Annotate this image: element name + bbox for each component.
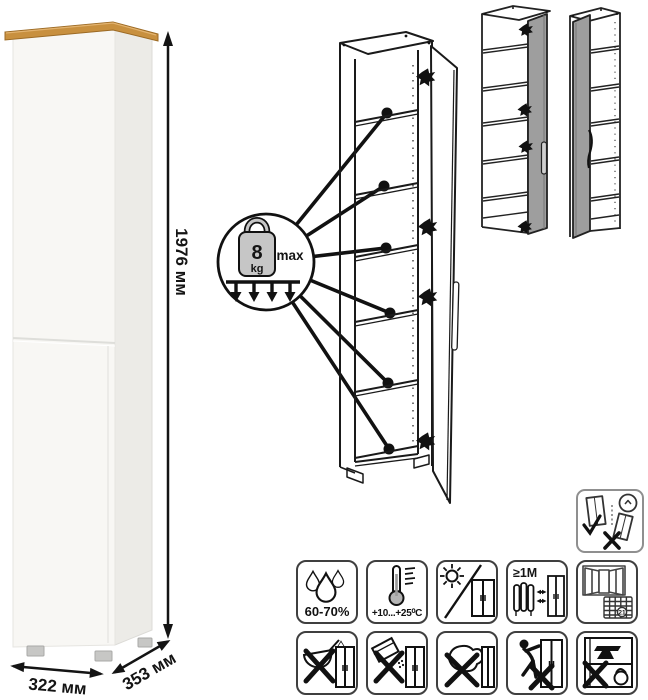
icon-no-overloading — [576, 631, 638, 695]
door-handle — [452, 282, 459, 350]
window-calendar-icon: 21 — [578, 562, 635, 621]
depth-dimension-label: 353 мм — [119, 648, 179, 694]
icon-no-wet-cloth — [436, 631, 498, 695]
x-mark — [605, 533, 619, 548]
min-distance-label: ≥1М — [513, 566, 537, 580]
distance-arrows — [537, 590, 547, 603]
icon-no-direct-sunlight — [436, 560, 498, 624]
icon-humidity-range: 60-70% — [296, 560, 358, 624]
width-dimension-label: 322 мм — [28, 675, 88, 699]
icon-no-dragging — [506, 631, 568, 695]
variant-door-left — [570, 8, 620, 238]
ladle-drop-x-icon — [298, 633, 355, 692]
anchor-to-wall-icon — [576, 489, 644, 553]
wet-sponge-x-icon — [438, 633, 495, 692]
load-max-label: max — [276, 248, 304, 263]
water-drops-icon — [298, 562, 355, 606]
shelf-pointer-dots — [379, 108, 396, 455]
sun-slash-cabinet-icon — [438, 562, 495, 621]
open-cabinet-load-diagram: 8 kg max — [210, 10, 500, 520]
thermometer-icon — [368, 562, 425, 606]
cabinet-carcass-outline — [340, 32, 433, 483]
powder-bag-x-icon — [368, 633, 425, 692]
load-value: 8 — [251, 242, 262, 264]
variant-door-right — [482, 6, 550, 234]
overload-anvil-x-icon — [578, 633, 635, 692]
cabinet-side-face — [115, 30, 152, 645]
anchor-to-wall-glyph — [578, 491, 642, 551]
height-dimension-label: 1976 мм — [172, 228, 191, 296]
person-dragging-x-icon — [508, 633, 565, 692]
calendar-day: 21 — [618, 609, 626, 616]
radiator-distance-icon: ≥1М — [508, 562, 565, 621]
icon-no-abrasive-powders — [366, 631, 428, 695]
temperature-label: +10...+25⁰C — [368, 608, 426, 619]
kettlebell-glyph — [615, 669, 628, 685]
icon-ventilate-room: 21 — [576, 560, 638, 624]
furniture-product-diagram: 1976 мм 322 мм 353 мм — [0, 0, 648, 700]
height-dimension-arrow — [163, 31, 173, 639]
icon-temperature-range: +10...+25⁰C — [366, 560, 428, 624]
door-variant-views — [470, 0, 648, 245]
open-door-outline — [431, 46, 459, 503]
icon-keep-distance-from-heat: ≥1М — [506, 560, 568, 624]
humidity-label: 60-70% — [298, 604, 356, 619]
cabinet-render-with-dimensions: 1976 мм 322 мм 353 мм — [0, 0, 220, 700]
icon-no-liquids — [296, 631, 358, 695]
load-unit: kg — [251, 263, 264, 275]
